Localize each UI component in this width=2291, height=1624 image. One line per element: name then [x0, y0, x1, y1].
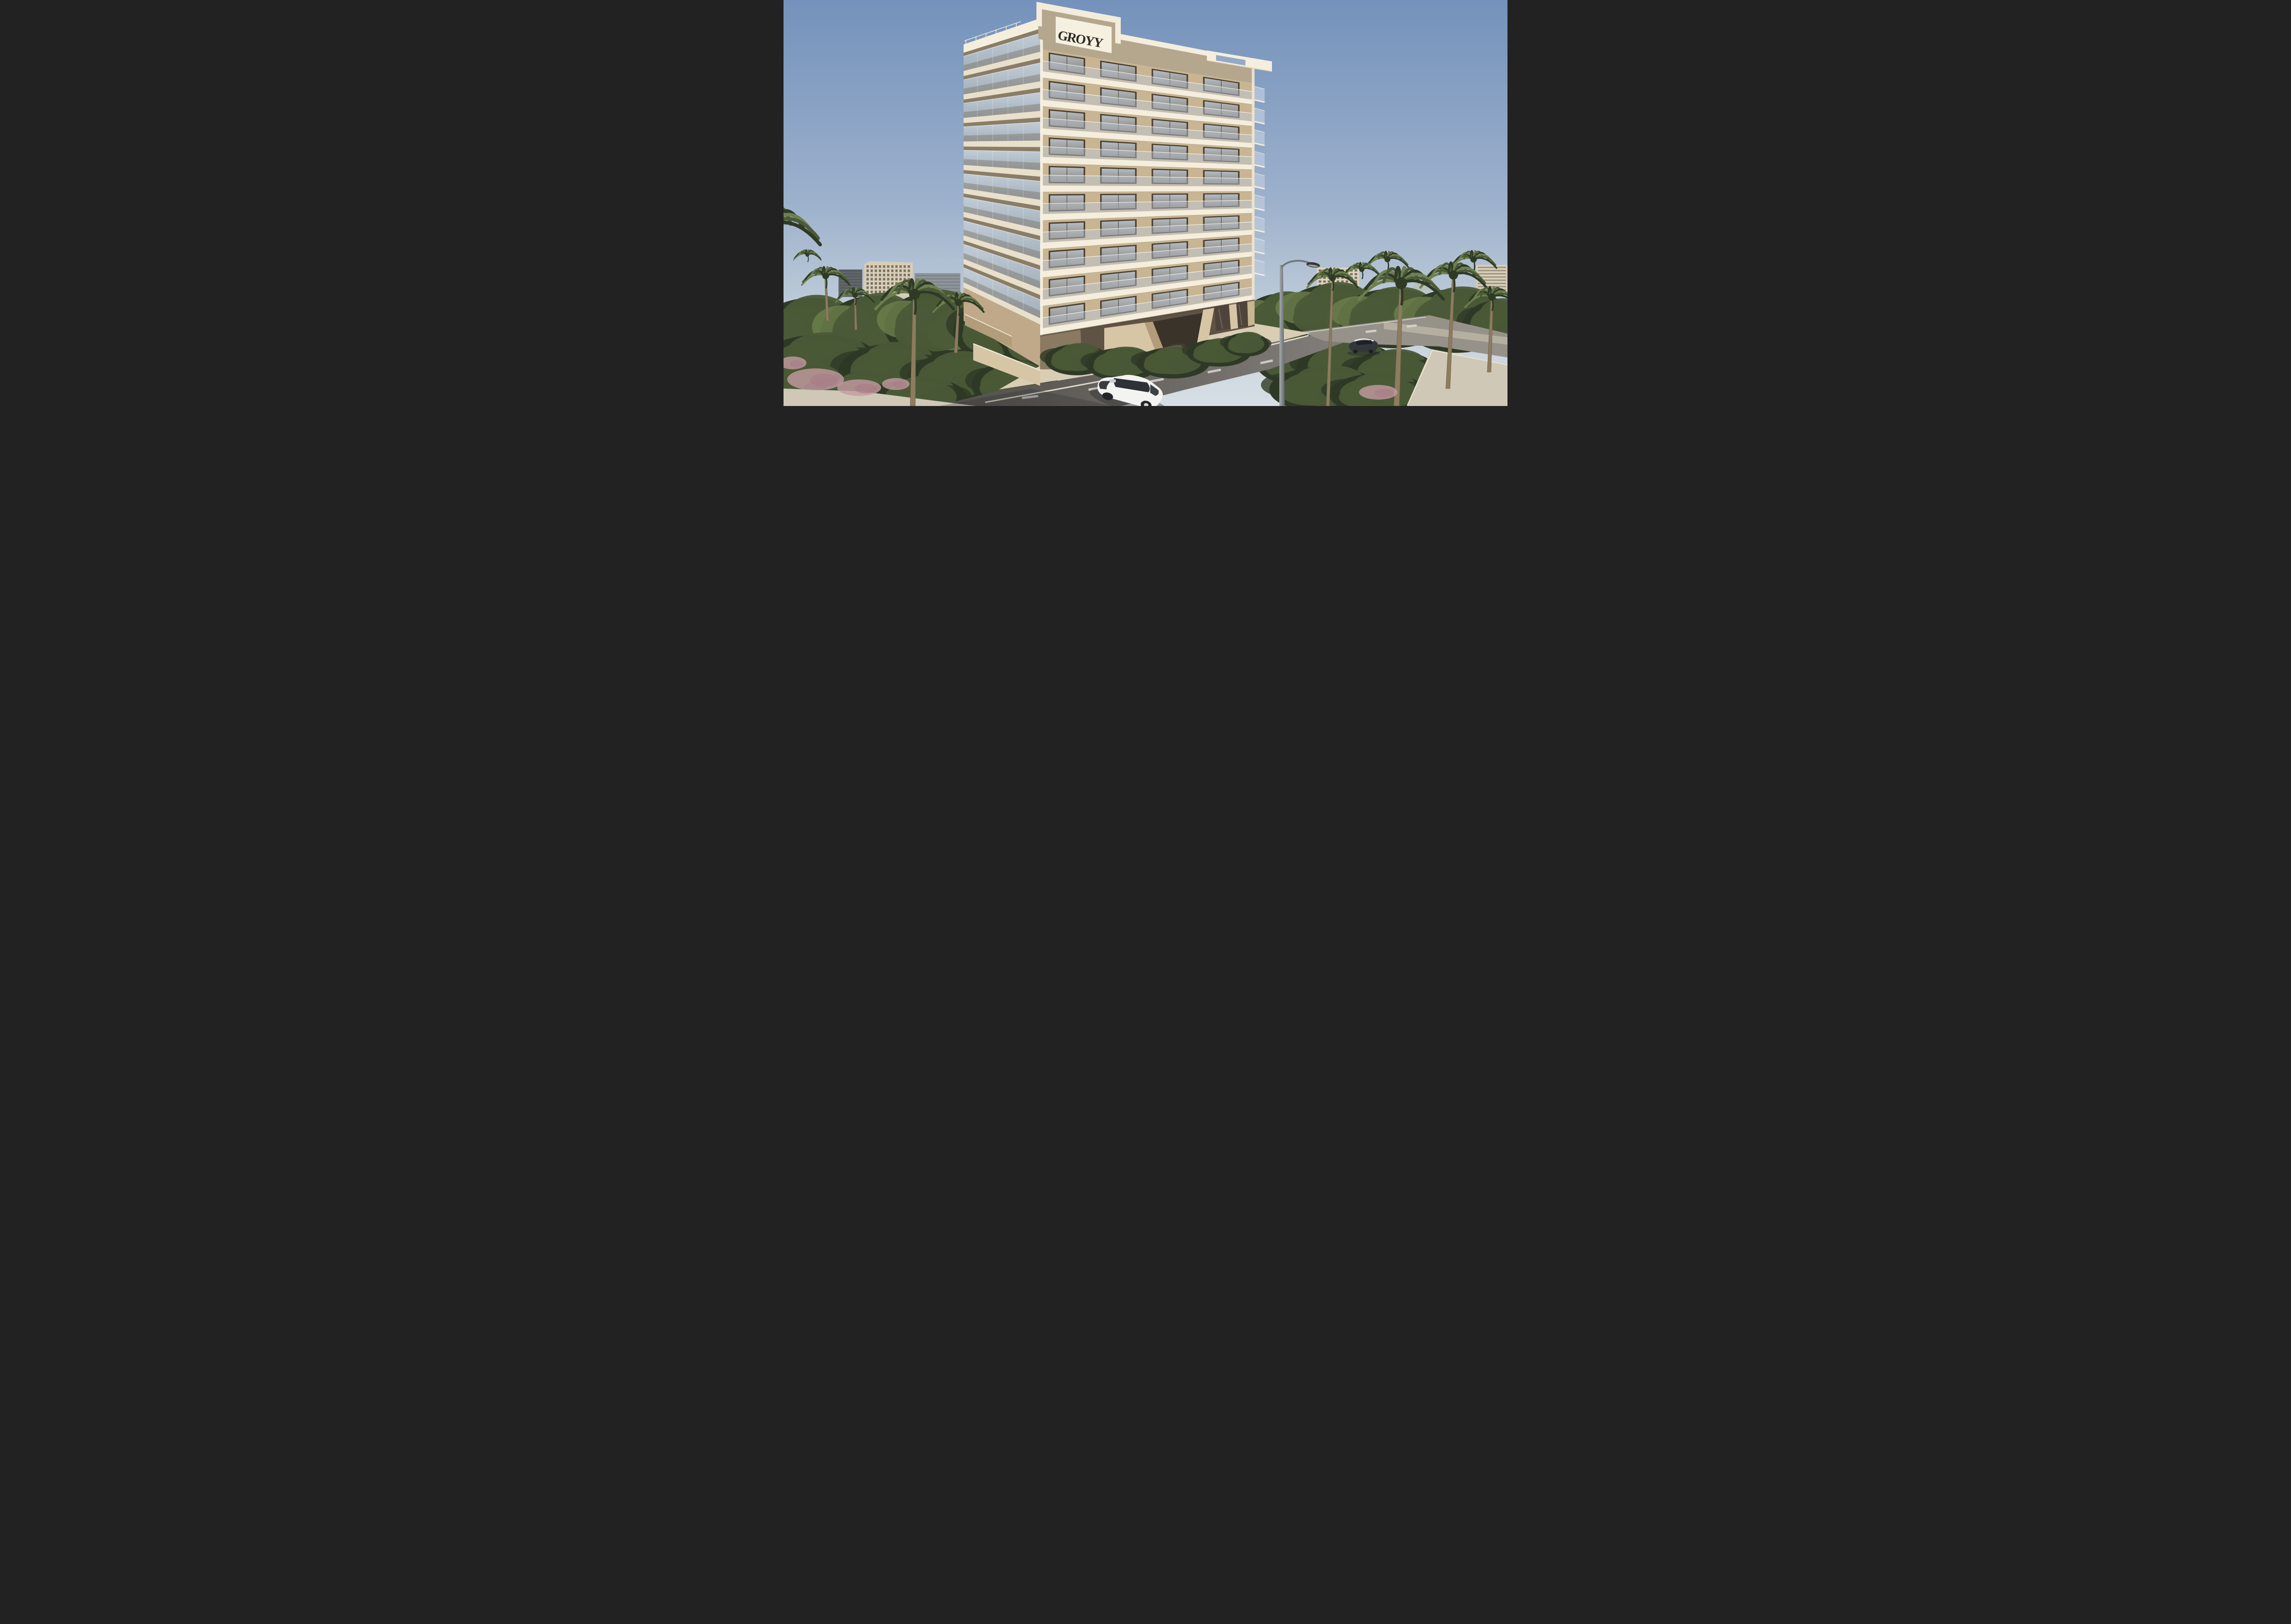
main-tower: GROYY	[964, 2, 1272, 386]
sign-frame-left	[1036, 2, 1042, 27]
scene-canvas: GROYY	[784, 0, 1507, 406]
architectural-render-photo: GROYY	[784, 0, 1507, 406]
tower-left-face	[964, 18, 1040, 367]
sign-frame-right	[1115, 16, 1121, 44]
tower-front-face	[1040, 18, 1265, 349]
